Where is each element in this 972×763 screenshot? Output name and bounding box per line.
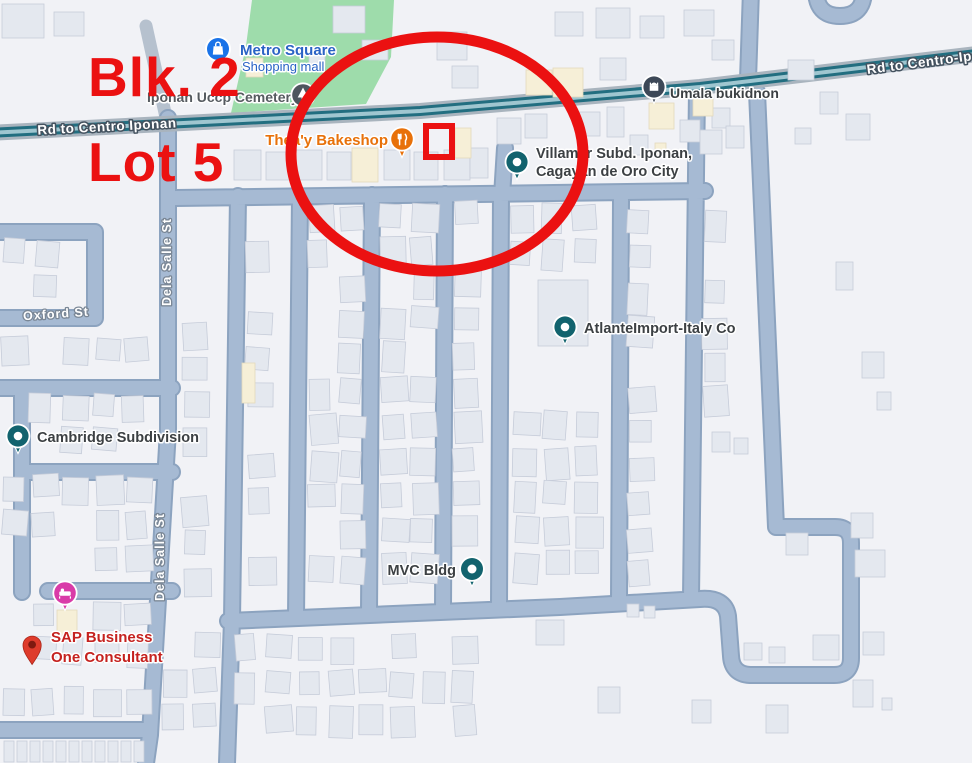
place-dot-center: [513, 158, 522, 167]
block-annotation-text: Blk. 2: [88, 46, 241, 108]
poi-label-atlante[interactable]: AtlanteImport-Italy Co: [584, 321, 736, 337]
place-dot-center: [561, 323, 570, 332]
poi-label-umala[interactable]: Umala bukidnon: [670, 85, 779, 101]
poi-label-sap-line1[interactable]: SAP Business: [51, 629, 152, 646]
poi-label-metro-square[interactable]: Metro Square: [240, 42, 336, 59]
poi-label-mvc[interactable]: MVC Bldg: [388, 563, 456, 579]
mosque-base-glyph: [650, 86, 659, 91]
map-svg: Oxford St Dela Salle St Dela Salle St Rd…: [0, 0, 972, 763]
restaurant-icon: [391, 128, 413, 150]
place-dot-center: [14, 432, 23, 441]
poi-label-bakeshop[interactable]: Thea'y Bakeshop: [265, 132, 388, 149]
poi-label-villamar-line2[interactable]: Cagayan de Oro City: [536, 164, 679, 180]
poi-sublabel-metro-square: Shopping mall: [242, 59, 324, 74]
road-label-dela-salle-lower: Dela Salle St: [153, 513, 167, 601]
pin-center-dot: [28, 641, 36, 649]
road-label-dela-salle-upper: Dela Salle St: [160, 218, 174, 306]
bed-glyph: [59, 591, 70, 595]
lot-annotation-text: Lot 5: [88, 131, 224, 193]
place-dot-center: [468, 565, 477, 574]
poi-label-sap-line2[interactable]: One Consultant: [51, 649, 163, 666]
poi-label-villamar-line1[interactable]: Villamar Subd. Iponan,: [536, 146, 692, 162]
map-canvas[interactable]: Oxford St Dela Salle St Dela Salle St Rd…: [0, 0, 972, 763]
pillow-glyph: [61, 589, 64, 592]
poi-label-cambridge[interactable]: Cambridge Subdivision: [37, 430, 199, 446]
